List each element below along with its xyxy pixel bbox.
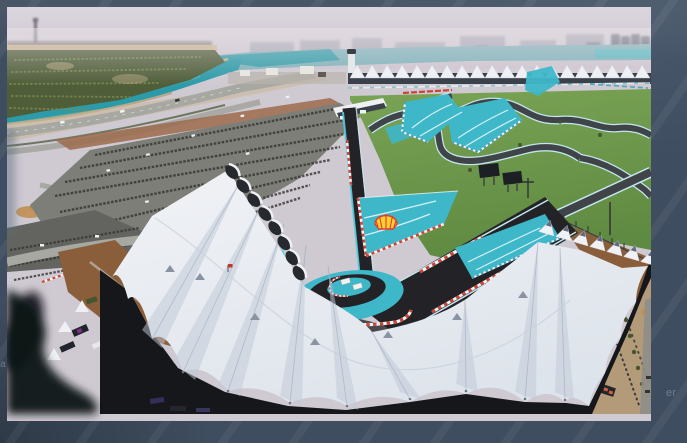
- frame-text-remnant-left: a: [0, 359, 6, 370]
- screenshot-root: a er: [0, 0, 687, 443]
- page-background-frame: a er: [0, 0, 687, 443]
- frame-text-remnant-right: er: [666, 388, 676, 399]
- photo-canvas: [7, 7, 651, 421]
- aerial-photo: [7, 7, 651, 421]
